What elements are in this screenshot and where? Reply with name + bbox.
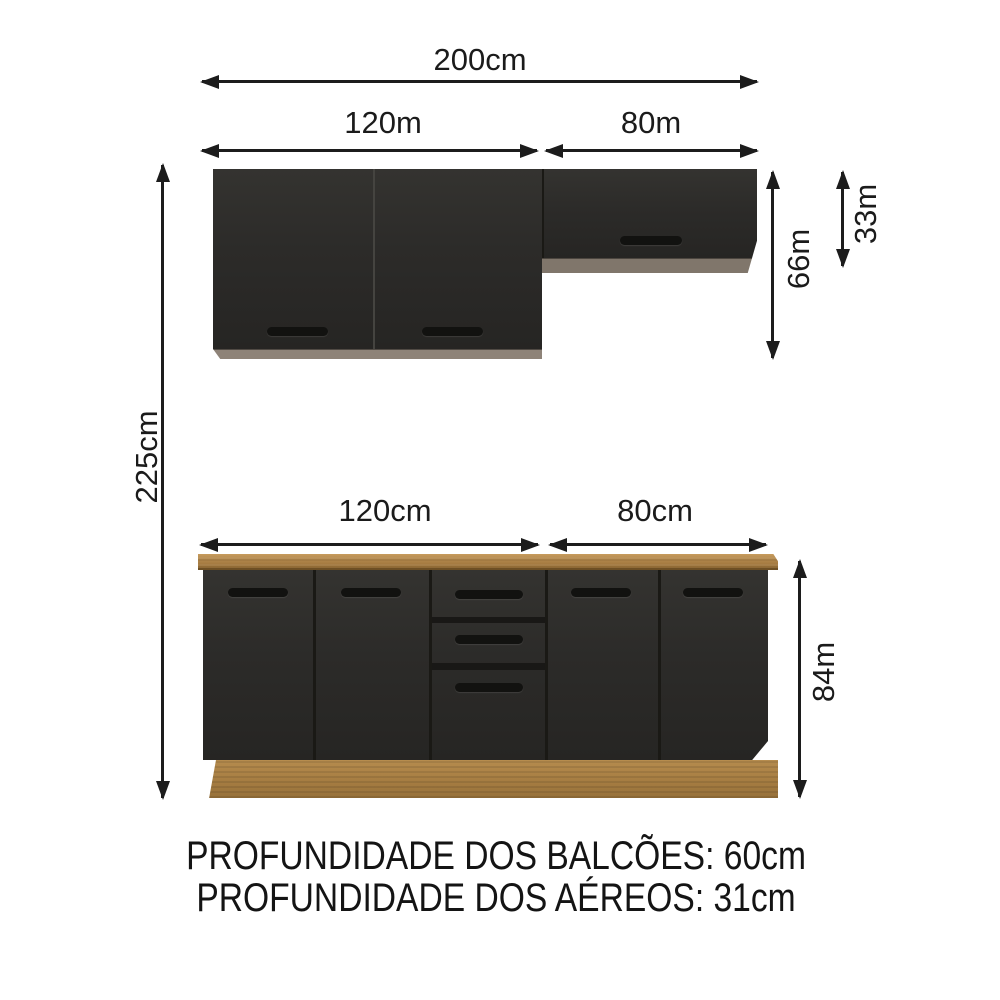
- upper-door-left-handle: [267, 327, 328, 336]
- upper-cabinet-tall: [213, 169, 542, 358]
- base-door-4-handle: [683, 588, 743, 597]
- arrow-counter-height: [798, 561, 801, 797]
- base-door-1-handle: [228, 588, 288, 597]
- kitchen-dimensions-diagram: 200cm 120m 80m 225cm 66m 33m 120cm 80cm: [0, 0, 1000, 1000]
- arrow-overall-width: [202, 80, 757, 83]
- arrow-counter-right-width: [550, 543, 766, 546]
- base-divider-1: [313, 570, 316, 760]
- upper-cabinet-short-trim: [542, 258, 757, 274]
- dim-label-counter-right-width: 80cm: [545, 493, 765, 529]
- countertop: [198, 554, 778, 570]
- arrow-upper-cabinet-height: [771, 172, 774, 358]
- base-door-3-handle: [571, 588, 631, 597]
- dim-label-upper-left-width: 120m: [273, 105, 493, 141]
- base-door-2-handle: [341, 588, 401, 597]
- dim-label-upper-cabinet-height: 66m: [779, 184, 819, 334]
- footer-note-counter-depth: PROFUNDIDADE DOS BALCÕES: 60cm: [160, 835, 832, 877]
- dim-label-upper-right-cabinet-height: 33m: [846, 139, 886, 289]
- dim-label-counter-height: 84m: [804, 597, 844, 747]
- dim-label-overall-width: 200cm: [370, 42, 590, 78]
- base-cabinet: [203, 570, 768, 760]
- base-divider-4: [658, 570, 661, 760]
- arrow-counter-left-width: [201, 543, 538, 546]
- drawer-gap-1: [432, 617, 545, 623]
- arrow-upper-right-cabinet-height: [841, 172, 844, 266]
- footer-note-upper-depth: PROFUNDIDADE DOS AÉREOS: 31cm: [160, 877, 832, 919]
- drawer-gap-2: [432, 663, 545, 670]
- arrow-upper-right-width: [546, 149, 757, 152]
- base-divider-3: [545, 570, 548, 760]
- upper-cabinet-tall-doors: [213, 169, 542, 349]
- upper-cabinet-short: [542, 169, 757, 273]
- dim-label-upper-right-width: 80m: [541, 105, 761, 141]
- toe-kick: [208, 760, 778, 798]
- arrow-overall-height: [161, 165, 164, 798]
- upper-door-right-handle: [422, 327, 483, 336]
- footer-notes: PROFUNDIDADE DOS BALCÕES: 60cm PROFUNDID…: [160, 835, 832, 919]
- drawer-3-handle: [455, 683, 523, 692]
- upper-door-divider: [373, 169, 375, 349]
- dim-label-counter-left-width: 120cm: [275, 493, 495, 529]
- upper-cabinet-short-door: [542, 169, 759, 258]
- drawer-1-handle: [455, 590, 523, 599]
- upper-cabinet-tall-trim: [213, 349, 542, 359]
- drawer-2-handle: [455, 635, 523, 644]
- upper-short-door-handle: [620, 236, 682, 245]
- arrow-upper-left-width: [202, 149, 537, 152]
